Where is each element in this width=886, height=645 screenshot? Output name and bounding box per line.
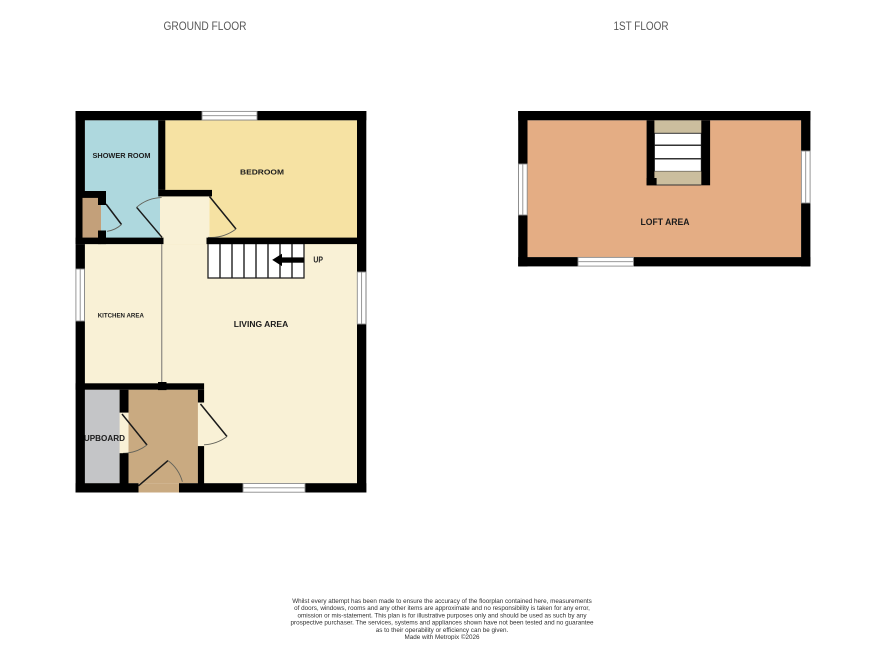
svg-text:as to their operability or eff: as to their operability or efficiency ca… (376, 627, 509, 634)
svg-text:BEDROOM: BEDROOM (240, 167, 284, 176)
svg-text:CUPBOARD: CUPBOARD (78, 433, 125, 443)
svg-text:LIVING AREA: LIVING AREA (234, 319, 289, 329)
svg-text:prospective purchaser. The ser: prospective purchaser. The services, sys… (290, 620, 594, 627)
svg-text:Whilst every attempt has been: Whilst every attempt has been made to en… (292, 598, 592, 605)
svg-text:omission or mis-statement. Thi: omission or mis-statement. This plan is … (298, 612, 588, 619)
svg-text:of doors, windows, rooms and a: of doors, windows, rooms and any other i… (294, 605, 590, 612)
svg-text:Made with Metropix ©2026: Made with Metropix ©2026 (405, 633, 480, 640)
svg-text:SHOWER ROOM: SHOWER ROOM (93, 151, 151, 160)
svg-text:LOFT AREA: LOFT AREA (641, 217, 690, 227)
svg-text:UP: UP (313, 256, 323, 265)
svg-text:1ST FLOOR: 1ST FLOOR (614, 19, 669, 33)
svg-text:KITCHEN AREA: KITCHEN AREA (98, 313, 145, 320)
svg-text:GROUND FLOOR: GROUND FLOOR (164, 19, 247, 33)
